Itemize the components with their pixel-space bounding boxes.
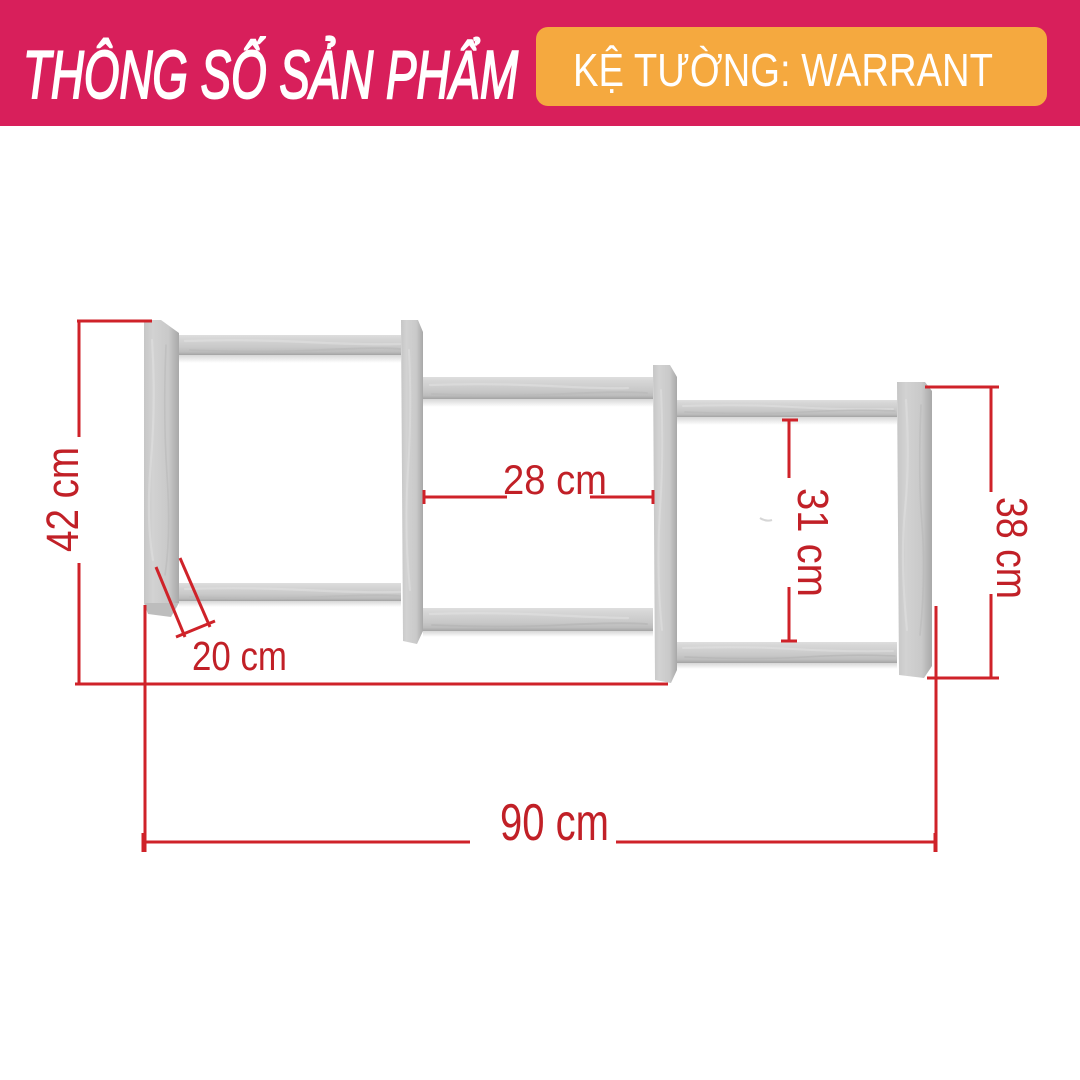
svg-text:KỆ TƯỜNG: WARRANT: KỆ TƯỜNG: WARRANT — [573, 44, 993, 96]
svg-text:28 cm: 28 cm — [503, 456, 607, 503]
svg-text:20 cm: 20 cm — [192, 633, 287, 679]
svg-text:31 cm: 31 cm — [788, 488, 837, 597]
svg-text:90 cm: 90 cm — [500, 794, 609, 852]
svg-text:42 cm: 42 cm — [37, 447, 88, 552]
svg-text:THÔNG SỐ SẢN PHẨM: THÔNG SỐ SẢN PHẨM — [23, 35, 518, 113]
svg-text:38 cm: 38 cm — [987, 497, 1036, 599]
